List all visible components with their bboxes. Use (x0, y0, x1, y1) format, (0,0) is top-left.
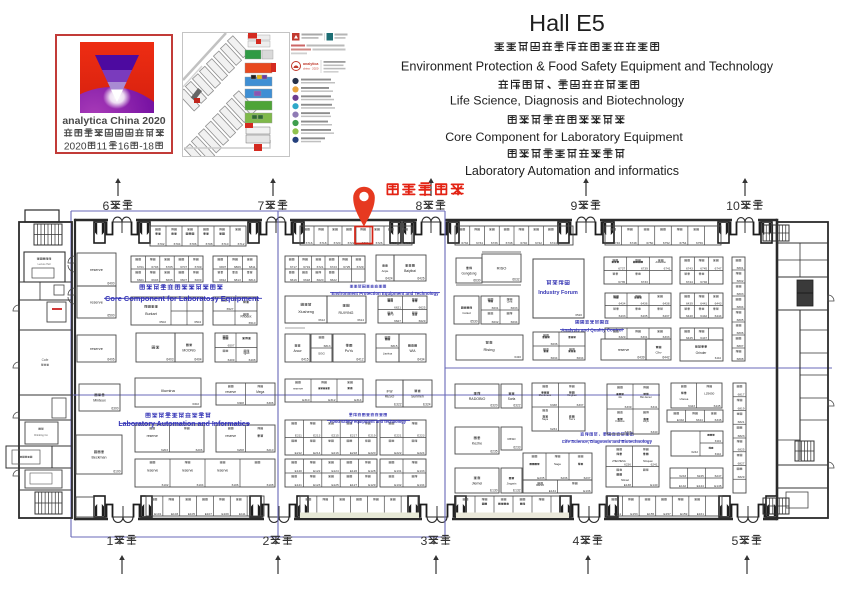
svg-text:E213: E213 (313, 433, 321, 437)
svg-text:6819: 6819 (738, 406, 745, 410)
svg-text:6756: 6756 (696, 241, 703, 245)
svg-text:Gongdong: Gongdong (462, 272, 477, 276)
svg-text:6339: 6339 (625, 405, 632, 409)
svg-text:6442: 6442 (662, 356, 669, 360)
svg-text:6234: 6234 (550, 427, 557, 431)
svg-text:reserve: reserve (90, 347, 103, 351)
svg-text:MOONG: MOONG (182, 349, 196, 353)
svg-text:8: 8 (416, 199, 423, 213)
svg-text:6435: 6435 (641, 314, 648, 318)
svg-text:6732: 6732 (461, 241, 468, 245)
svg-text:6445: 6445 (714, 404, 721, 408)
svg-text:6717: 6717 (290, 265, 297, 269)
svg-text:6812: 6812 (219, 278, 226, 282)
svg-text:E138: E138 (624, 483, 632, 487)
svg-text:E342: E342 (677, 418, 685, 422)
svg-text:6740: 6740 (520, 241, 527, 245)
svg-text:6520: 6520 (575, 313, 582, 317)
svg-text:6343: 6343 (715, 439, 722, 443)
svg-text:Minquan: Minquan (643, 460, 653, 463)
svg-text:Anjie: Anjie (382, 269, 389, 273)
svg-text:Anow: Anow (294, 349, 303, 353)
svg-text:6424: 6424 (385, 277, 392, 281)
svg-text:6736: 6736 (491, 241, 498, 245)
svg-text:6743: 6743 (686, 266, 693, 270)
svg-text:6806: 6806 (737, 331, 744, 335)
svg-text:PU: PU (390, 313, 394, 317)
svg-text:6712: 6712 (238, 242, 245, 246)
svg-text:6346: 6346 (715, 418, 722, 422)
svg-text:2: 2 (263, 534, 270, 548)
svg-text:E235: E235 (537, 476, 545, 480)
svg-text:R6SD: R6SD (507, 437, 516, 441)
svg-text:SGG: SGG (318, 351, 325, 355)
svg-text:6702: 6702 (158, 242, 165, 246)
svg-text:E146: E146 (714, 484, 722, 488)
svg-text:6730: 6730 (404, 241, 411, 245)
svg-text:Sorfa: Sorfa (508, 397, 516, 401)
svg-text:6705: 6705 (166, 265, 173, 269)
svg-text:6434: 6434 (417, 358, 424, 362)
svg-text:6206: 6206 (196, 448, 203, 452)
svg-text:E312: E312 (328, 398, 336, 402)
svg-text:6320: 6320 (490, 404, 497, 408)
svg-text:reserve: reserve (217, 469, 228, 473)
svg-text:E132: E132 (394, 483, 402, 487)
svg-text:6247: 6247 (715, 474, 722, 478)
svg-text:6633: 6633 (511, 306, 518, 310)
svg-text:6821: 6821 (738, 420, 745, 424)
svg-text:E123: E123 (313, 483, 321, 487)
svg-text:E153: E153 (630, 512, 638, 516)
svg-text:6625: 6625 (419, 305, 426, 309)
svg-text:Environment Protection Equipme: Environment Protection Equipment and Tec… (331, 291, 439, 296)
svg-text:Jiemei: Jiemei (472, 482, 483, 486)
svg-text:6632: 6632 (512, 278, 519, 282)
svg-text:Areteline: Areteline (656, 260, 667, 264)
svg-text:6235: 6235 (490, 450, 497, 454)
svg-text:6242: 6242 (691, 450, 698, 454)
svg-text:6716: 6716 (306, 241, 313, 245)
svg-text:Sage: Sage (554, 462, 561, 466)
svg-text:E103: E103 (171, 512, 179, 516)
svg-text:E128: E128 (368, 469, 376, 473)
svg-text:E134: E134 (417, 483, 425, 487)
svg-text:10: 10 (726, 199, 740, 213)
svg-text:6300: 6300 (111, 407, 118, 411)
svg-text:RADOBIO: RADOBIO (469, 397, 486, 401)
svg-text:Life Science, Diagnosis and Bi: Life Science, Diagnosis and Biotechnolog… (562, 439, 652, 444)
svg-text:6412: 6412 (356, 358, 363, 362)
svg-text:E221: E221 (394, 433, 402, 437)
svg-text:6627: 6627 (394, 319, 401, 323)
svg-text:E157: E157 (664, 512, 672, 516)
svg-text:Naya: Naya (542, 417, 549, 421)
svg-text:5: 5 (732, 534, 739, 548)
svg-text:6634: 6634 (551, 356, 558, 360)
svg-text:E161: E161 (697, 512, 705, 516)
svg-text:E101: E101 (154, 512, 162, 516)
svg-text:E219: E219 (368, 433, 376, 437)
svg-text:6444: 6444 (715, 356, 722, 360)
svg-text:6607: 6607 (180, 278, 187, 282)
svg-text:6807: 6807 (737, 344, 744, 348)
svg-text:6500: 6500 (107, 314, 114, 318)
svg-text:E224: E224 (417, 451, 425, 455)
svg-text:6438: 6438 (663, 301, 670, 305)
svg-text:E211: E211 (295, 433, 302, 437)
svg-text:Rising: Rising (483, 347, 494, 352)
svg-text:6709: 6709 (195, 265, 202, 269)
svg-text:6233: 6233 (513, 446, 520, 450)
svg-text:6603: 6603 (151, 278, 158, 282)
svg-text:6706: 6706 (190, 242, 197, 246)
svg-text:6622: 6622 (330, 278, 337, 282)
svg-text:E159: E159 (680, 512, 688, 516)
svg-text:9: 9 (571, 199, 578, 213)
svg-text:E140: E140 (650, 483, 658, 487)
svg-text:6605: 6605 (166, 278, 173, 282)
svg-text:E124: E124 (331, 469, 339, 473)
svg-text:4: 4 (573, 534, 580, 548)
svg-text:PuYu: PuYu (345, 349, 354, 353)
svg-text:Laboratory Automation and Info: Laboratory Automation and Informatics (118, 421, 249, 428)
svg-text:reserve: reserve (90, 301, 103, 305)
svg-text:7: 7 (258, 199, 265, 213)
svg-text:6723: 6723 (330, 265, 337, 269)
svg-text:6447: 6447 (700, 336, 707, 340)
svg-text:E215: E215 (331, 433, 339, 437)
svg-text:6801: 6801 (737, 266, 744, 270)
svg-text:6728: 6728 (390, 241, 397, 245)
svg-text:6636: 6636 (551, 342, 558, 346)
svg-text:E322: E322 (394, 403, 402, 407)
svg-text:6100: 6100 (113, 470, 120, 474)
svg-text:E125: E125 (331, 483, 339, 487)
svg-text:RESO: RESO (385, 395, 395, 399)
svg-text:Clhv: Clhv (655, 351, 662, 355)
svg-text:E127: E127 (350, 483, 358, 487)
svg-text:6808: 6808 (737, 357, 744, 361)
svg-text:E111: E111 (239, 512, 246, 516)
svg-text:Food safety equipment and tech: Food safety equipment and technology (330, 419, 407, 424)
svg-text:6803: 6803 (737, 292, 744, 296)
svg-text:6331: 6331 (641, 335, 648, 339)
svg-text:Grinder: Grinder (696, 351, 708, 355)
svg-text:6718: 6718 (320, 241, 327, 245)
svg-text:6747: 6747 (715, 266, 722, 270)
svg-text:6815: 6815 (391, 344, 398, 348)
svg-text:E212: E212 (295, 451, 303, 455)
svg-text:6527: 6527 (227, 307, 234, 311)
svg-text:6738: 6738 (506, 241, 513, 245)
svg-text:6601: 6601 (137, 278, 144, 282)
svg-text:Lfterea: Lfterea (680, 397, 689, 401)
svg-text:Membrane: Membrane (539, 393, 552, 397)
svg-text:6440: 6440 (686, 314, 693, 318)
svg-text:6441: 6441 (700, 301, 707, 305)
svg-text:E217: E217 (350, 433, 358, 437)
svg-text:Xiusheng: Xiusheng (298, 310, 314, 314)
svg-text:E122: E122 (313, 469, 321, 473)
svg-text:6745: 6745 (700, 266, 707, 270)
svg-text:6630: 6630 (473, 279, 480, 283)
svg-text:6443: 6443 (715, 301, 722, 305)
svg-text:6726: 6726 (376, 241, 383, 245)
svg-text:Fulltime: Fulltime (615, 419, 625, 423)
svg-text:ZHECHENG: ZHECHENG (612, 460, 626, 463)
svg-text:6739: 6739 (641, 266, 648, 270)
svg-text:6340: 6340 (651, 430, 658, 434)
svg-text:E121: E121 (295, 483, 303, 487)
svg-text:E324: E324 (423, 403, 431, 407)
svg-text:6245: 6245 (697, 474, 704, 478)
svg-text:Lianhua: Lianhua (383, 351, 393, 355)
svg-text:6439: 6439 (637, 356, 644, 360)
svg-text:6734: 6734 (476, 241, 483, 245)
svg-text:6814: 6814 (249, 278, 256, 282)
svg-text:E134: E134 (549, 489, 557, 493)
svg-text:LZ6650: LZ6650 (704, 391, 715, 395)
svg-text:Minteux: Minteux (93, 399, 106, 403)
svg-text:Baiyibai: Baiyibai (404, 269, 416, 273)
svg-text:6829: 6829 (738, 475, 745, 479)
svg-text:Xinghan: Xinghan (567, 393, 577, 397)
svg-text:6811: 6811 (249, 265, 256, 269)
svg-text:6746: 6746 (613, 241, 620, 245)
svg-text:6338: 6338 (550, 403, 557, 407)
svg-text:Ahyu: Ahyu (643, 419, 649, 423)
svg-text:6337: 6337 (577, 403, 584, 407)
svg-text:6620: 6620 (317, 278, 324, 282)
svg-text:6754: 6754 (679, 241, 686, 245)
svg-text:6742: 6742 (535, 241, 542, 245)
svg-text:reserve: reserve (618, 348, 629, 352)
svg-text:6408: 6408 (249, 358, 256, 362)
svg-text:6632: 6632 (492, 320, 499, 324)
svg-text:6504: 6504 (194, 320, 201, 324)
svg-text:6433: 6433 (619, 314, 626, 318)
svg-text:6442: 6442 (700, 314, 707, 318)
svg-text:6434: 6434 (619, 301, 626, 305)
svg-text:6341: 6341 (651, 405, 658, 409)
svg-text:6722: 6722 (348, 241, 355, 245)
svg-text:reserve: reserve (147, 434, 158, 438)
svg-text:Rhodex: Rhodex (241, 314, 252, 318)
svg-text:E129: E129 (368, 483, 376, 487)
svg-text:6813: 6813 (324, 344, 331, 348)
svg-text:6616: 6616 (290, 278, 297, 282)
svg-text:E126: E126 (350, 469, 358, 473)
svg-text:E216: E216 (331, 451, 339, 455)
svg-text:Cafe: Cafe (42, 358, 49, 362)
svg-text:Bio-Gener: Bio-Gener (640, 396, 652, 399)
svg-text:E222: E222 (394, 451, 402, 455)
svg-text:E218: E218 (350, 451, 358, 455)
svg-text:6823: 6823 (738, 434, 745, 438)
svg-text:6804: 6804 (737, 305, 744, 309)
svg-text:6721: 6721 (317, 265, 324, 269)
svg-text:6813: 6813 (234, 278, 241, 282)
svg-text:6102: 6102 (162, 483, 169, 487)
svg-text:6426: 6426 (417, 277, 424, 281)
svg-text:Illumina: Illumina (161, 388, 176, 393)
svg-text:6510: 6510 (249, 321, 256, 325)
svg-text:Kezhe: Kezhe (472, 442, 482, 446)
svg-text:E132: E132 (513, 489, 521, 493)
svg-text:Coiled: Coiled (462, 311, 471, 315)
svg-text:6612: 6612 (318, 318, 325, 322)
svg-text:WIA: WIA (409, 349, 416, 353)
svg-text:6243: 6243 (679, 474, 686, 478)
svg-text:6737: 6737 (618, 266, 625, 270)
svg-text:E142: E142 (679, 484, 687, 488)
svg-text:Lecture Hall: Lecture Hall (38, 263, 51, 266)
svg-text:6344: 6344 (696, 418, 703, 422)
svg-text:E310: E310 (302, 398, 310, 402)
svg-text:Industry Forum: Industry Forum (538, 290, 578, 296)
svg-text:Igux: Igux (243, 351, 249, 355)
svg-text:6415: 6415 (301, 358, 308, 362)
svg-text:E105: E105 (188, 512, 196, 516)
svg-text:Sunmen: Sunmen (411, 395, 424, 399)
svg-text:E133: E133 (417, 469, 425, 473)
svg-text:6807: 6807 (219, 265, 226, 269)
svg-text:6704: 6704 (174, 242, 181, 246)
svg-text:6530: 6530 (470, 320, 477, 324)
svg-text:reserve: reserve (147, 469, 158, 473)
svg-text:6634: 6634 (577, 356, 584, 360)
svg-text:Drinking Co: Drinking Co (34, 433, 48, 437)
svg-text:E120: E120 (295, 469, 303, 473)
svg-text:6208: 6208 (237, 448, 244, 452)
svg-text:6430: 6430 (514, 355, 521, 359)
svg-text:6735: 6735 (618, 280, 625, 284)
svg-text:6302: 6302 (192, 402, 199, 406)
svg-text:6802: 6802 (737, 279, 744, 283)
svg-text:6752: 6752 (663, 241, 670, 245)
svg-text:6748: 6748 (630, 241, 637, 245)
svg-text:E151: E151 (614, 512, 622, 516)
svg-text:Mega: Mega (256, 390, 264, 394)
svg-text:6409: 6409 (228, 358, 235, 362)
svg-text:6306: 6306 (267, 401, 274, 405)
svg-text:reserve: reserve (293, 386, 303, 390)
svg-text:Tan’s: Tan’s (569, 417, 576, 421)
svg-text:E131: E131 (394, 469, 402, 473)
svg-text:6827: 6827 (738, 461, 745, 465)
svg-text:E214: E214 (313, 451, 321, 455)
svg-text:6502: 6502 (159, 320, 166, 324)
svg-text:RISO: RISO (497, 266, 507, 271)
svg-text:6322: 6322 (513, 404, 520, 408)
svg-text:6203: 6203 (161, 448, 168, 452)
svg-text:6817: 6817 (738, 393, 745, 397)
svg-text:6746: 6746 (700, 280, 707, 284)
svg-text:E314: E314 (354, 398, 362, 402)
svg-text:6621: 6621 (394, 305, 401, 309)
svg-text:6703: 6703 (151, 265, 158, 269)
svg-text:RESO: RESO (536, 483, 545, 487)
svg-text:6707: 6707 (180, 265, 187, 269)
svg-text:6106: 6106 (232, 483, 239, 487)
svg-text:4A: 4A (618, 395, 622, 399)
svg-text:6333: 6333 (663, 335, 670, 339)
svg-text:6719: 6719 (303, 265, 310, 269)
svg-text:3: 3 (421, 534, 428, 548)
svg-text:6720: 6720 (334, 241, 341, 245)
svg-text:6404: 6404 (194, 358, 201, 362)
svg-text:6445: 6445 (686, 336, 693, 340)
svg-text:6443: 6443 (688, 404, 695, 408)
svg-text:E107: E107 (205, 512, 213, 516)
svg-text:6406: 6406 (107, 358, 114, 362)
svg-text:Burkart: Burkart (145, 312, 157, 316)
svg-text:6338: 6338 (625, 430, 632, 434)
svg-text:6741: 6741 (664, 266, 671, 270)
svg-text:6437: 6437 (663, 314, 670, 318)
svg-text:6710: 6710 (222, 242, 229, 246)
svg-text:6444: 6444 (715, 314, 722, 318)
svg-text:Mimad: Mimad (621, 479, 629, 482)
svg-text:6308: 6308 (237, 401, 244, 405)
svg-text:6729: 6729 (357, 265, 364, 269)
svg-text:RUIYING: RUIYING (339, 311, 354, 315)
svg-text:6436: 6436 (641, 301, 648, 305)
svg-text:Crea: Crea (507, 299, 513, 303)
svg-text:6403: 6403 (166, 358, 173, 362)
svg-text:6507: 6507 (228, 343, 235, 347)
svg-text:6236: 6236 (561, 476, 568, 480)
svg-text:E109: E109 (222, 512, 230, 516)
svg-text:E136: E136 (583, 489, 591, 493)
svg-text:6614: 6614 (357, 318, 364, 322)
svg-text:6725: 6725 (343, 265, 350, 269)
svg-text:6634: 6634 (511, 320, 518, 324)
svg-text:6108: 6108 (267, 483, 274, 487)
svg-text:1: 1 (107, 534, 114, 548)
svg-text:6329: 6329 (619, 335, 626, 339)
svg-text:6825: 6825 (738, 448, 745, 452)
svg-text:6805: 6805 (737, 318, 744, 322)
svg-text:reserve: reserve (182, 469, 193, 473)
svg-text:E223: E223 (417, 433, 425, 437)
svg-text:E144: E144 (697, 484, 705, 488)
svg-text:6750: 6750 (646, 241, 653, 245)
svg-text:reserve: reserve (90, 268, 103, 272)
svg-text:Beckman: Beckman (92, 456, 107, 460)
svg-text:6631: 6631 (492, 306, 499, 310)
svg-text:6439: 6439 (686, 301, 693, 305)
svg-text:iPaf: iPaf (387, 389, 393, 393)
svg-text:Jingwin: Jingwin (507, 482, 517, 486)
svg-text:6609: 6609 (195, 278, 202, 282)
svg-text:6708: 6708 (206, 242, 213, 246)
svg-text:6629: 6629 (419, 319, 426, 323)
svg-text:6400: 6400 (107, 282, 114, 286)
svg-text:6237: 6237 (584, 476, 591, 480)
svg-text:6809: 6809 (234, 265, 241, 269)
svg-text:6618: 6618 (303, 278, 310, 282)
svg-text:reserve: reserve (225, 434, 236, 438)
svg-text:6: 6 (103, 199, 110, 213)
svg-text:E220: E220 (368, 451, 376, 455)
svg-text:reserve: reserve (225, 390, 236, 394)
svg-text:E155: E155 (647, 512, 655, 516)
svg-text:6344: 6344 (715, 452, 722, 456)
svg-text:6744: 6744 (686, 280, 693, 284)
svg-text:E130: E130 (490, 489, 498, 493)
